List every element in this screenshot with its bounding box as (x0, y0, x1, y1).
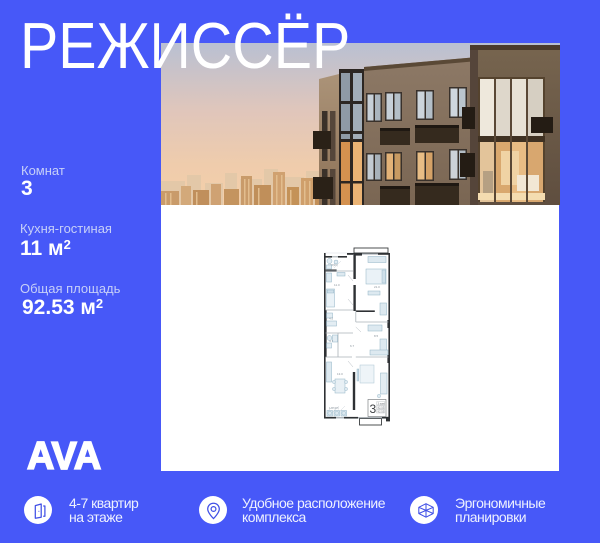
svg-text:6.7: 6.7 (350, 344, 355, 348)
svg-text:13.0: 13.0 (337, 372, 343, 376)
svg-text:3: 3 (369, 402, 376, 416)
svg-text:11.0: 11.0 (334, 283, 340, 287)
svg-text:4.7: 4.7 (329, 339, 334, 343)
svg-text:4.5: 4.5 (329, 317, 334, 321)
svg-text:21.0: 21.0 (374, 285, 380, 289)
svg-text:8.5: 8.5 (374, 334, 379, 338)
svg-text:4.0П(2П): 4.0П(2П) (329, 407, 339, 410)
